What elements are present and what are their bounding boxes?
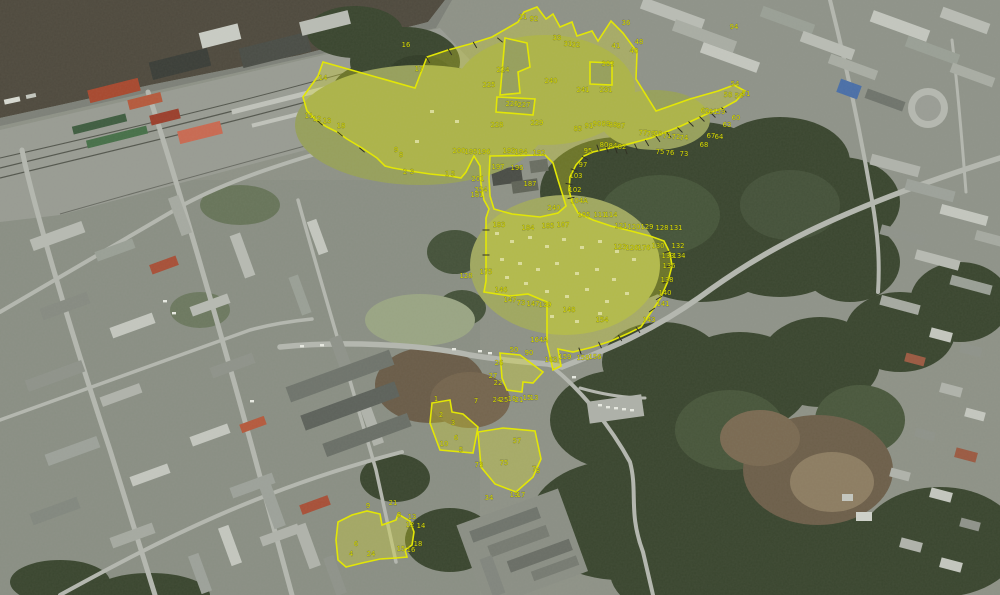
parcel-number-label: 196	[511, 164, 524, 172]
car	[598, 404, 602, 406]
parcel-number-label: 136	[663, 262, 676, 270]
parcel-number-label: 1	[434, 395, 438, 403]
parcel-number-label: 62	[701, 107, 710, 115]
parcel-number-label: 10	[440, 440, 449, 448]
car	[606, 406, 610, 408]
parcel-number-label: 192	[533, 149, 546, 157]
car	[622, 408, 626, 410]
parcel-number-label: 34	[485, 494, 494, 502]
car	[300, 345, 304, 347]
parcel-number-label: 148	[563, 306, 576, 314]
parcel-number-label: 13	[408, 513, 417, 521]
parcel-number-label: 75	[500, 459, 509, 467]
parcel-number-label: 8	[397, 511, 401, 519]
parcel-number-label: 138	[661, 276, 674, 284]
parcel-number-label: 184	[522, 224, 535, 232]
parcel-number-label: 8	[399, 151, 403, 159]
parcel-number-label: 143	[643, 316, 656, 324]
parcel-number-label: 187	[524, 180, 537, 188]
parcel-number-label: 156	[589, 353, 602, 361]
parcel-number-label: 16	[402, 41, 411, 49]
parcel-number-label: 131	[670, 224, 683, 232]
parcel-number-label: 60	[732, 114, 741, 122]
parcel-number-label: 12	[406, 521, 415, 529]
parcel-number-label: 71	[663, 132, 672, 140]
parcel-number-label: 147	[504, 296, 517, 304]
parcel-number-label: 92	[530, 15, 539, 23]
parcel-number-label: 2	[403, 168, 407, 176]
parcel-number-label: 196	[478, 148, 491, 156]
parcel-number-label: 21	[519, 13, 528, 21]
parcel-number-label: 17	[517, 491, 526, 499]
parcel-number-label: 185	[542, 222, 555, 230]
parcel-number-label: 7	[474, 397, 478, 405]
parcel-number-label: 24	[367, 550, 376, 558]
parcel-number-label: 14	[417, 522, 426, 530]
parcel-number-label: 159	[559, 353, 572, 361]
parcel-number-label: 183	[493, 221, 506, 229]
parcel-number-label: 231	[600, 86, 613, 94]
car	[172, 312, 176, 314]
parcel-number-label: 40	[630, 47, 639, 55]
car	[478, 350, 482, 352]
parcel-number-label: 50	[510, 346, 519, 354]
parcel-number-label: 5	[451, 170, 455, 178]
car	[572, 376, 576, 378]
parcel-number-label: 63	[723, 121, 732, 129]
parcel-number-label: 146	[495, 286, 508, 294]
parcel-number-label: 105	[578, 211, 591, 219]
parcel-number-label: 90	[525, 349, 534, 357]
parcel-number-label: 197	[492, 163, 505, 171]
parcel-number-label: 32	[572, 41, 581, 49]
parcel-number-label: 140	[659, 289, 672, 297]
parcel-number-label: 176	[638, 244, 651, 252]
parcel-number-label: 75	[656, 148, 665, 156]
parcel-number-label: 134	[673, 252, 686, 260]
satellite-map-image: 1416171112131898231521922242252262272282…	[0, 0, 1000, 595]
car	[452, 348, 456, 350]
parcel-number-label: 90	[593, 120, 602, 128]
parcel-number-label: 107	[557, 221, 570, 229]
parcel-number-label: 129	[641, 223, 654, 231]
parcel-number-label: 254	[475, 186, 488, 194]
parcel-number-label: 84	[609, 142, 618, 150]
parcel-number-label: 22	[494, 379, 503, 387]
car	[320, 344, 324, 346]
parcel-number-label: 41	[612, 42, 621, 50]
car	[614, 407, 618, 409]
parcel-number-label: 3	[451, 419, 455, 427]
car	[488, 352, 492, 354]
parcel-number-label: 12	[313, 115, 322, 123]
parcel-number-label: 13	[323, 117, 332, 125]
parcel-number-label: 8	[536, 467, 540, 475]
parcel-number-label: 6	[354, 540, 358, 548]
parcel-number-label: 103	[570, 172, 583, 180]
parcel-number-label: 1	[445, 170, 449, 178]
parcel-number-label: 85	[574, 125, 583, 133]
parcel-number-label: 5	[459, 446, 463, 454]
parcel-number-label: 128	[656, 224, 669, 232]
parcel-number-label: 14	[319, 74, 328, 82]
parcel-number-label: 58	[724, 91, 733, 99]
parcel-number-label: 73	[680, 150, 689, 158]
parcel-number-label: 194	[515, 148, 528, 156]
parcel-number-label: 104A	[570, 197, 588, 205]
parcel-number-label: 224	[497, 66, 510, 74]
parcel-number-label: 225	[483, 81, 496, 89]
parcel-number-label: 64	[715, 133, 724, 141]
parcel-number-label: 3	[410, 168, 414, 176]
parcel-number-label: 26	[495, 359, 504, 367]
parcel-number-label: 228	[491, 121, 504, 129]
parcel-number-label: 61	[709, 108, 718, 116]
parcel-number-label: 240	[545, 77, 558, 85]
parcel-number-label: 97	[579, 161, 588, 169]
building	[529, 159, 548, 173]
car	[163, 300, 167, 302]
parcel-number-label: 130	[652, 242, 665, 250]
parcel-number-label: 114	[605, 211, 618, 219]
parcel-number-label: 74	[680, 134, 689, 142]
parcel-number-label: 82	[618, 143, 627, 151]
parcel-number-label: 17	[415, 65, 424, 73]
parcel-number-label: 4	[349, 550, 353, 558]
parcel-number-label: 54	[731, 80, 740, 88]
parcel-number-label: 128	[460, 272, 473, 280]
parcel-number-label: 18	[337, 122, 346, 130]
parcel-number-label: 154	[596, 316, 609, 324]
car	[630, 409, 634, 411]
parcel-number-label: 68	[700, 141, 709, 149]
parcel-number-label: 164A	[530, 336, 548, 344]
parcel-number-label: 120	[628, 223, 641, 231]
parcel-number-label: 33	[553, 34, 562, 42]
parcel-number-label: 57	[513, 437, 522, 445]
parcel-number-label: 201	[472, 175, 485, 183]
parcel-number-label: 95	[584, 147, 593, 155]
parcel-number-label: 139	[539, 301, 552, 309]
parcel-number-label: 241	[577, 86, 590, 94]
parcel-number-label: 141	[657, 300, 670, 308]
parcel-number-label: 163	[545, 356, 558, 364]
parcel-number-label: 2	[439, 411, 443, 419]
parcel-number-label: 227	[518, 101, 531, 109]
parcel-number-label: 9	[366, 502, 370, 510]
parcel-number-label: 132	[672, 242, 685, 250]
parcel-number-label: 59	[717, 108, 726, 116]
parcel-number-label: 51	[742, 90, 751, 98]
parcel-number-label: 73	[517, 299, 526, 307]
car	[250, 400, 254, 402]
parcel-number-label: 229	[531, 119, 544, 127]
parcel-number-label: 302	[602, 60, 615, 68]
parcel-number-label: 87	[617, 122, 626, 130]
parcel-number-label: 78	[654, 130, 663, 138]
parcel-number-label: 36	[622, 19, 631, 27]
parcel-number-label: 195	[465, 148, 478, 156]
parcel-number-label: 94	[730, 23, 739, 31]
parcel-number-label: 21	[389, 499, 398, 507]
parcel-number-label: 175	[480, 268, 493, 276]
parcel-number-label: 240	[548, 204, 561, 212]
parcel-number-label: 73	[475, 461, 484, 469]
parcel-number-label: 80	[600, 141, 609, 149]
parcel-number-label: 102	[569, 186, 582, 194]
parcel-number-label: 15	[397, 545, 406, 553]
parcel-number-label: 18	[414, 540, 423, 548]
parcel-number-label: 48	[635, 38, 644, 46]
parcel-number-label: 121	[615, 222, 628, 230]
parcel-number-label: 9	[394, 146, 398, 154]
satellite-map[interactable]: 1416171112131898231521922242252262272282…	[0, 0, 1000, 595]
parcel-number-label: 76	[666, 149, 675, 157]
parcel-number-label: 13	[530, 394, 539, 402]
circular-tank-inner	[915, 95, 941, 121]
parcel-number-label: 6	[454, 434, 458, 442]
